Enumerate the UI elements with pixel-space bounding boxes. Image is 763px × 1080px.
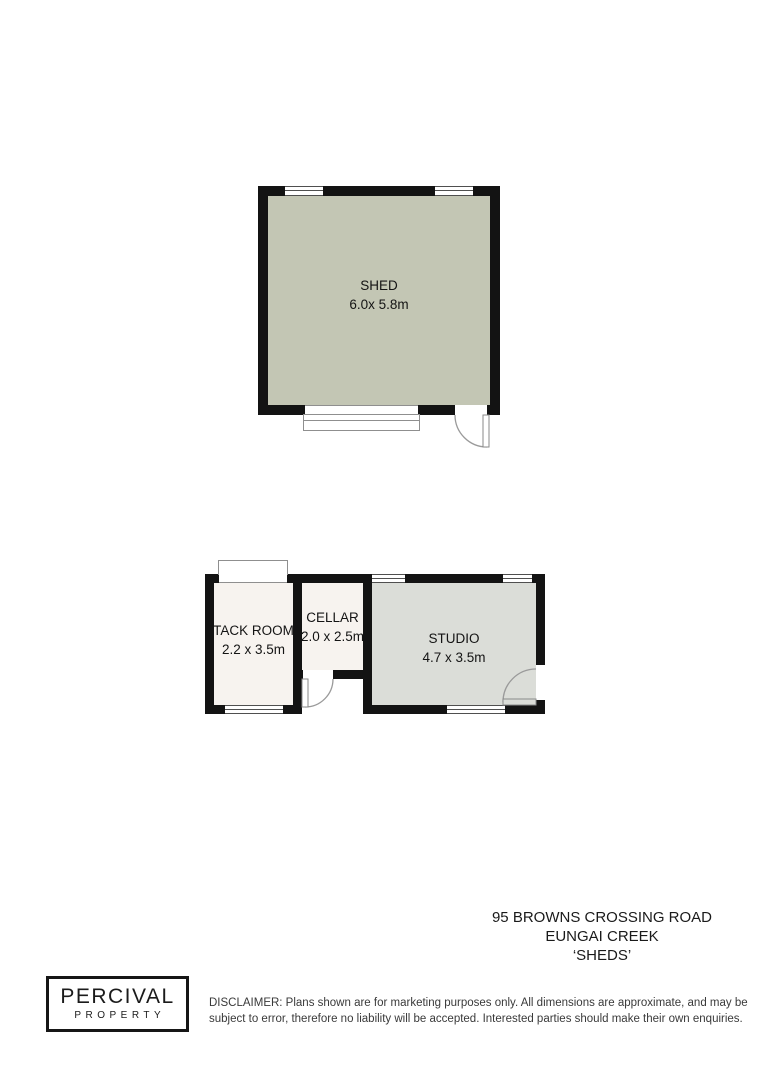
tack-top-gap	[219, 574, 287, 583]
shed-door-leaf	[483, 415, 489, 447]
tack-window-bottom	[225, 705, 283, 714]
floorplan-page: SHED 6.0x 5.8m TACK ROOM 2.2 x 3.5m CELL…	[0, 0, 763, 1080]
tack-room-dims: 2.2 x 3.5m	[205, 640, 302, 659]
studio-name: STUDIO	[372, 629, 536, 648]
studio-window-top-left	[372, 574, 405, 583]
address-line-2: EUNGAI CREEK	[437, 927, 763, 946]
studio-window-top-right	[503, 574, 532, 583]
tack-sliding-window	[218, 560, 288, 575]
studio-window-bottom	[447, 705, 505, 714]
percival-property-logo: PERCIVAL PROPERTY	[46, 976, 189, 1032]
tack-room-name: TACK ROOM	[205, 621, 302, 640]
logo-name: PERCIVAL	[60, 986, 174, 1008]
disclaimer-line-1: DISCLAIMER: Plans shown are for marketin…	[209, 996, 748, 1012]
cellar-name: CELLAR	[296, 608, 369, 627]
shed-dims: 6.0x 5.8m	[258, 295, 500, 314]
studio-label: STUDIO 4.7 x 3.5m	[372, 629, 536, 667]
address-line-3: ‘SHEDS’	[437, 946, 763, 965]
shed-door-gap	[455, 405, 487, 415]
cellar-dims: 2.0 x 2.5m	[296, 627, 369, 646]
shed-door-arc	[455, 415, 487, 447]
disclaimer-line-2: subject to error, therefore no liability…	[209, 1012, 748, 1028]
logo-subtitle: PROPERTY	[70, 1010, 165, 1022]
tack-room-label: TACK ROOM 2.2 x 3.5m	[205, 621, 302, 659]
shed-window-top-left	[285, 186, 323, 196]
cellar-door-arc	[305, 679, 333, 707]
studio-door-gap	[536, 665, 545, 700]
cellar-door-leaf	[302, 679, 308, 707]
disclaimer-text: DISCLAIMER: Plans shown are for marketin…	[209, 996, 748, 1027]
shed-sliding-door	[303, 414, 420, 431]
shed-sliding-door-track	[304, 420, 419, 421]
cellar-door-gap	[303, 670, 333, 679]
shed-label: SHED 6.0x 5.8m	[258, 276, 500, 314]
shed-name: SHED	[258, 276, 500, 295]
studio-dims: 4.7 x 3.5m	[372, 648, 536, 667]
shed-window-top-right	[435, 186, 473, 196]
address-line-1: 95 BROWNS CROSSING ROAD	[437, 908, 763, 927]
property-address: 95 BROWNS CROSSING ROAD EUNGAI CREEK ‘SH…	[437, 908, 763, 965]
cellar-label: CELLAR 2.0 x 2.5m	[296, 608, 369, 646]
